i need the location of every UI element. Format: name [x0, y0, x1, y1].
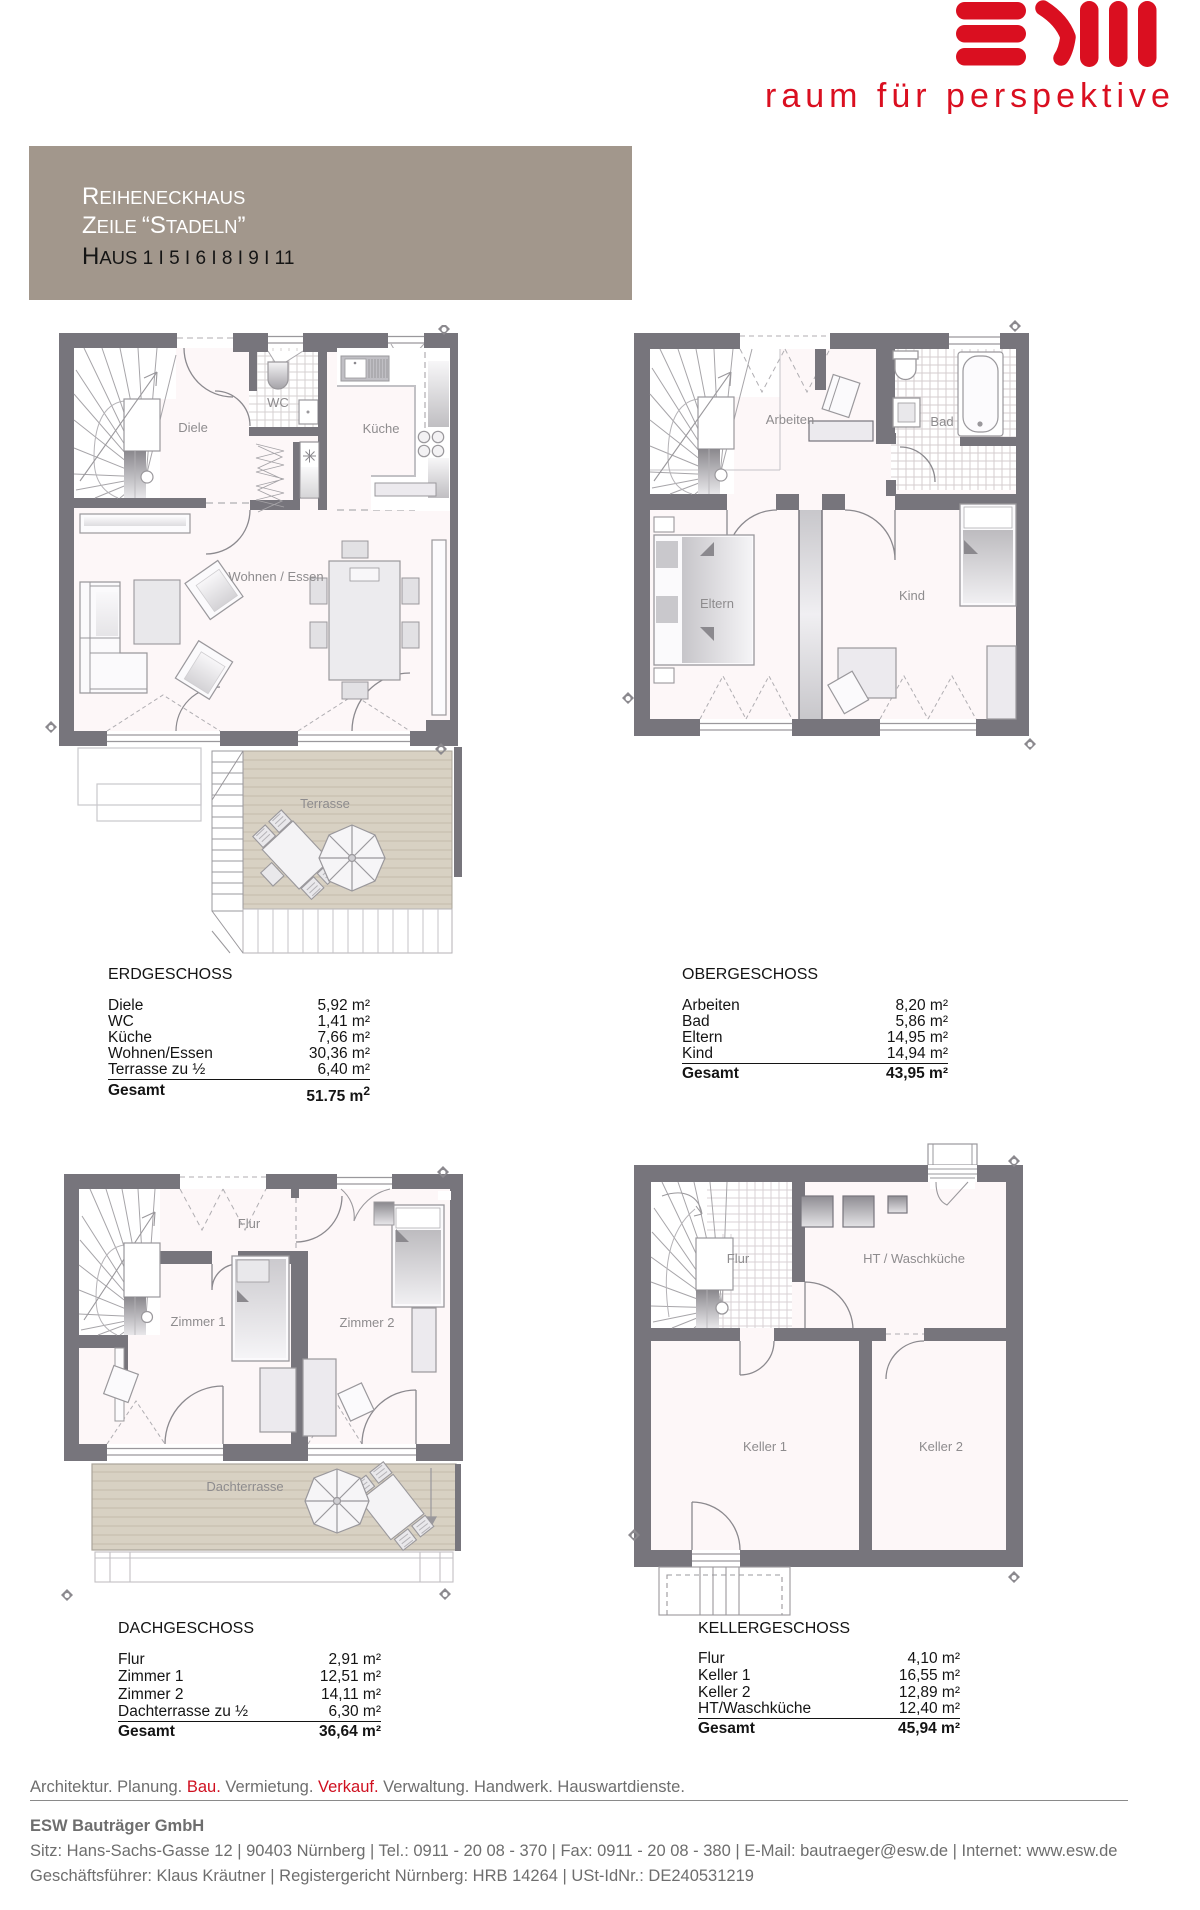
- svg-text:Küche: Küche: [363, 421, 400, 436]
- svg-text:Eltern: Eltern: [700, 596, 734, 611]
- svg-text:Arbeiten: Arbeiten: [766, 412, 814, 427]
- svg-text:HT / Waschküche: HT / Waschküche: [863, 1251, 965, 1266]
- svg-text:Flur: Flur: [238, 1216, 261, 1231]
- svg-text:WC: WC: [267, 395, 289, 410]
- svg-text:Diele: Diele: [178, 420, 208, 435]
- svg-text:Keller 1: Keller 1: [743, 1439, 787, 1454]
- svg-text:Kind: Kind: [899, 588, 925, 603]
- svg-text:Terrasse: Terrasse: [300, 796, 350, 811]
- svg-text:Dachterrasse: Dachterrasse: [206, 1479, 283, 1494]
- svg-text:Keller 2: Keller 2: [919, 1439, 963, 1454]
- svg-text:Zimmer 2: Zimmer 2: [340, 1315, 395, 1330]
- svg-text:Zimmer 1: Zimmer 1: [171, 1314, 226, 1329]
- svg-text:Bad: Bad: [930, 414, 953, 429]
- svg-text:Flur: Flur: [727, 1251, 750, 1266]
- svg-text:Wohnen / Essen: Wohnen / Essen: [228, 569, 323, 584]
